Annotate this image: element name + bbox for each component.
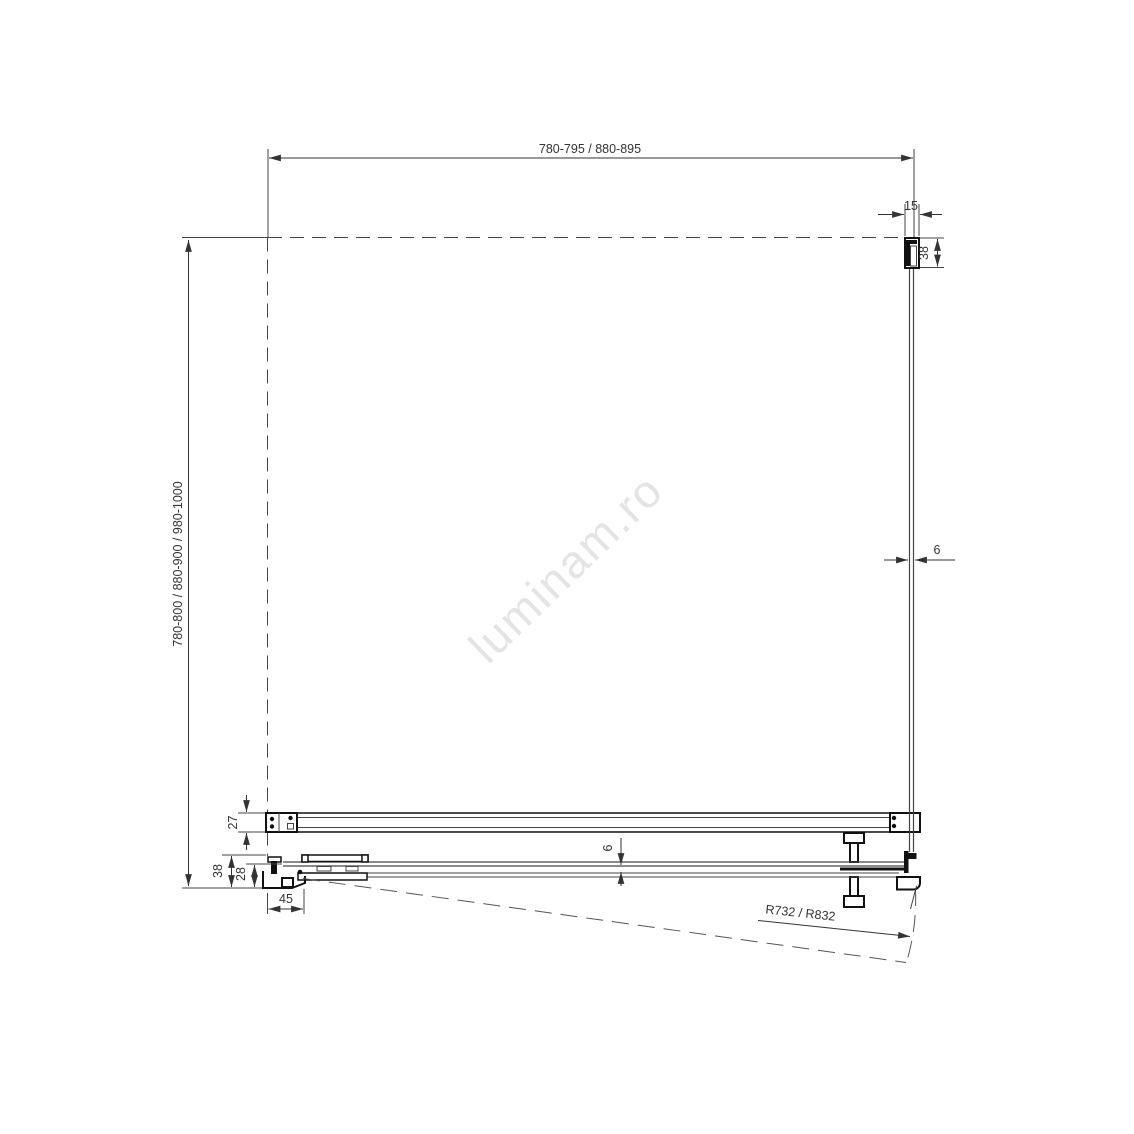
watermark-text: luminam.ro (459, 463, 673, 672)
pivot-screw-dot (298, 870, 303, 875)
dim-label-38-hinge: 38 (211, 864, 225, 878)
dim-label-top-width: 780-795 / 880-895 (539, 142, 641, 156)
wall-profile-fill (906, 240, 910, 266)
dim-label-6-side: 6 (934, 543, 941, 557)
hinge-inner-block (282, 878, 293, 887)
clamp-block (317, 867, 331, 872)
clamp-end-cap (302, 855, 308, 862)
door-assembly (263, 851, 920, 890)
handle-stem-inner (850, 877, 858, 896)
dim-label-6-door: 6 (601, 844, 615, 851)
dim-side-glass: 6 (884, 543, 955, 560)
dim-label-left-height: 780-800 / 880-900 / 980-1000 (171, 481, 185, 646)
dim-label-38: 38 (917, 246, 931, 260)
clamp-plate-top (302, 855, 368, 862)
dim-label-28: 28 (234, 867, 248, 881)
corner-bracket-vertical (904, 851, 909, 873)
dim-left-height: 780-800 / 880-900 / 980-1000 (171, 238, 268, 889)
screw-dot (892, 816, 896, 820)
dim-label-45: 45 (279, 892, 293, 906)
screw-dot (892, 824, 896, 828)
corner-bracket-hook (908, 853, 917, 859)
dim-support-bar-depth: 27 (226, 795, 265, 850)
fixed-glass-panel (910, 268, 914, 852)
dim-top-width: 780-795 / 880-895 (268, 142, 914, 237)
handle-knob-inner (844, 896, 864, 907)
shower-enclosure-drawing: luminam.ro 780-795 / 880-895 780-800 / 8… (0, 0, 1134, 1134)
dim-label-radius: R732 / R832 (765, 902, 836, 923)
dim-wall-profile-depth: 38 (917, 238, 944, 268)
wall-profile-top-fill (910, 240, 917, 244)
dim-hinge-offset: 45 (268, 889, 305, 914)
screw-dot (288, 816, 292, 820)
dim-label-27: 27 (226, 816, 240, 830)
door-swing-arc (907, 889, 916, 962)
support-bar-right-bracket (890, 813, 920, 832)
technical-drawing-canvas: luminam.ro 780-795 / 880-895 780-800 / 8… (0, 0, 1134, 1134)
dim-label-15: 15 (904, 199, 918, 213)
support-bar (266, 813, 920, 832)
clamp-block (346, 867, 358, 872)
handle-knob-outer (844, 833, 864, 843)
support-bar-body (266, 813, 920, 832)
hinge-pivot-fill (271, 861, 277, 874)
clamp-end-cap (362, 855, 368, 862)
screw-dot (270, 817, 274, 821)
dim-door-radius: R732 / R832 (758, 902, 910, 936)
screw-dot (270, 824, 274, 828)
dim-wall-profile-width: 15 (878, 199, 942, 236)
handle-stem-outer (850, 843, 858, 862)
